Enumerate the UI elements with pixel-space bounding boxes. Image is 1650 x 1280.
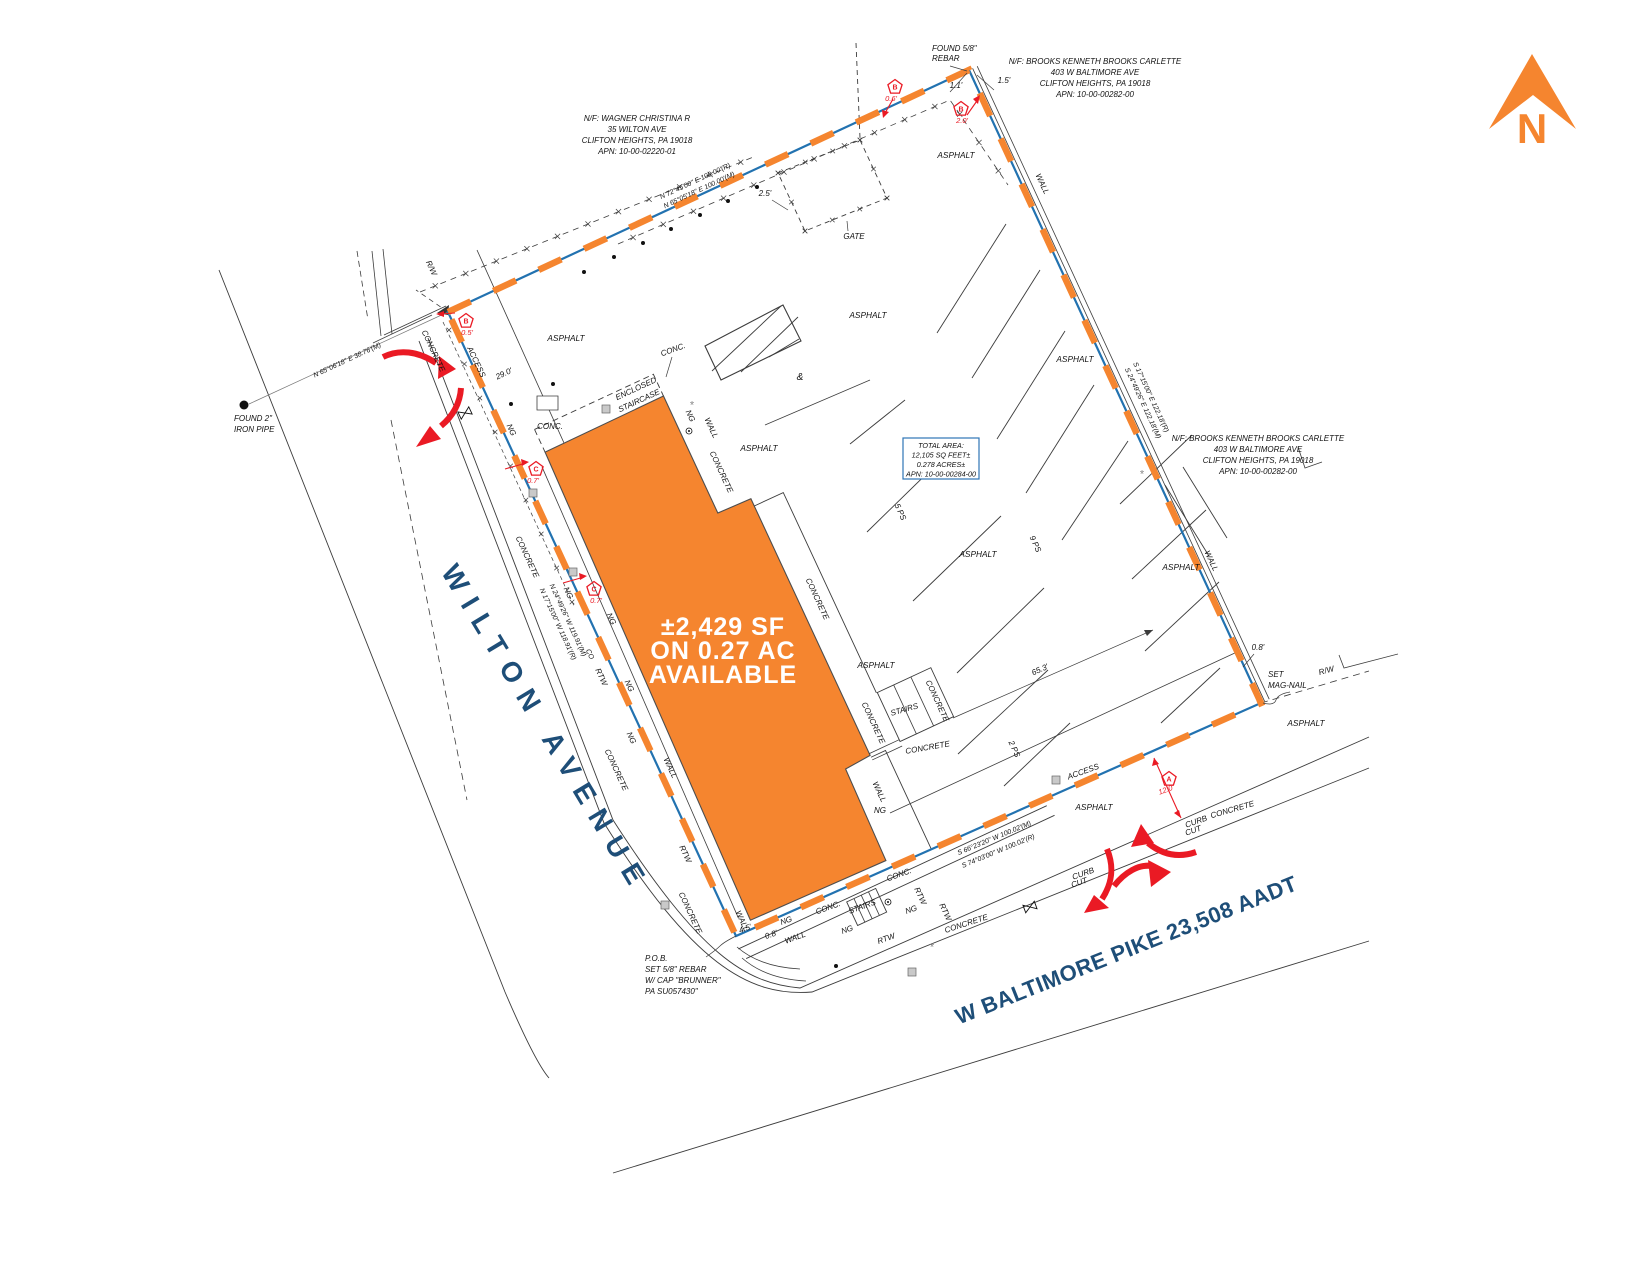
svg-text:N: N xyxy=(1517,105,1547,152)
svg-text:*: * xyxy=(1140,469,1145,481)
svg-text:403 W BALTIMORE AVE: 403 W BALTIMORE AVE xyxy=(1214,445,1303,454)
svg-text:W/ CAP "BRUNNER": W/ CAP "BRUNNER" xyxy=(645,976,722,985)
svg-text:NG: NG xyxy=(874,806,886,815)
svg-text:IRON PIPE: IRON PIPE xyxy=(234,425,275,434)
svg-text:403 W BALTIMORE AVE: 403 W BALTIMORE AVE xyxy=(1051,68,1140,77)
svg-text:N/F: BROOKS KENNETH BROOKS CAR: N/F: BROOKS KENNETH BROOKS CARLETTE xyxy=(1172,434,1345,443)
svg-text:CLIFTON HEIGHTS, PA 19018: CLIFTON HEIGHTS, PA 19018 xyxy=(1040,79,1151,88)
svg-text:SET 5/8" REBAR: SET 5/8" REBAR xyxy=(645,965,707,974)
svg-text:CLIFTON HEIGHTS, PA 19018: CLIFTON HEIGHTS, PA 19018 xyxy=(582,136,693,145)
svg-text:FOUND 2": FOUND 2" xyxy=(234,414,273,423)
svg-text:CLIFTON HEIGHTS, PA 19018: CLIFTON HEIGHTS, PA 19018 xyxy=(1203,456,1314,465)
svg-text:APN: 10-00-00282-00: APN: 10-00-00282-00 xyxy=(1055,90,1134,99)
svg-text:2.5': 2.5' xyxy=(758,189,772,198)
svg-text:REBAR: REBAR xyxy=(932,54,960,63)
svg-text:ASPHALT: ASPHALT xyxy=(739,443,778,453)
svg-text:GATE: GATE xyxy=(843,232,865,241)
svg-text:B: B xyxy=(463,319,468,326)
svg-text:ASPHALT: ASPHALT xyxy=(958,549,997,559)
svg-text:FOUND 5/8": FOUND 5/8" xyxy=(932,44,978,53)
svg-text:P.O.B.: P.O.B. xyxy=(645,954,668,963)
svg-text:B: B xyxy=(958,107,963,114)
svg-text:35 WILTON AVE: 35 WILTON AVE xyxy=(608,125,668,134)
svg-text:2.0': 2.0' xyxy=(955,116,968,125)
svg-text:ASPHALT: ASPHALT xyxy=(1074,802,1113,812)
svg-text:TOTAL AREA:: TOTAL AREA: xyxy=(918,441,964,450)
svg-text:N/F: WAGNER CHRISTINA R: N/F: WAGNER CHRISTINA R xyxy=(584,114,690,123)
svg-text:ASPHALT: ASPHALT xyxy=(848,310,887,320)
svg-text:0.278 ACRES±: 0.278 ACRES± xyxy=(917,460,965,469)
svg-text:C: C xyxy=(533,467,538,474)
svg-text:0.7': 0.7' xyxy=(527,476,539,485)
svg-text:*: * xyxy=(930,942,935,954)
svg-text:*: * xyxy=(690,400,695,412)
svg-text:PA SU057430": PA SU057430" xyxy=(645,987,699,996)
svg-text:N/F: BROOKS KENNETH BROOKS CAR: N/F: BROOKS KENNETH BROOKS CARLETTE xyxy=(1009,57,1182,66)
svg-text:0.8': 0.8' xyxy=(1252,643,1265,652)
svg-text:SET: SET xyxy=(1268,670,1285,679)
svg-text:0.7': 0.7' xyxy=(590,596,602,605)
svg-text:ASPHALT: ASPHALT xyxy=(546,333,585,343)
svg-text:ASPHALT: ASPHALT xyxy=(1161,562,1200,572)
svg-text:ASPHALT: ASPHALT xyxy=(936,150,975,160)
svg-text:ASPHALT: ASPHALT xyxy=(1286,718,1325,728)
svg-text:APN: 10-00-00282-00: APN: 10-00-00282-00 xyxy=(1218,467,1297,476)
svg-text:APN: 10-00-02220-01: APN: 10-00-02220-01 xyxy=(597,147,676,156)
svg-text:&: & xyxy=(797,372,804,383)
svg-text:ASPHALT: ASPHALT xyxy=(856,660,895,670)
svg-text:APN: 10-00-00284-00: APN: 10-00-00284-00 xyxy=(905,470,976,479)
svg-text:ASPHALT: ASPHALT xyxy=(1055,354,1094,364)
svg-text:B: B xyxy=(892,85,897,92)
svg-text:1.5': 1.5' xyxy=(998,76,1011,85)
svg-text:0.5': 0.5' xyxy=(461,328,473,337)
svg-text:CONC.: CONC. xyxy=(537,422,563,431)
svg-text:C: C xyxy=(591,587,596,594)
svg-text:0.6': 0.6' xyxy=(885,94,897,103)
svg-text:AVAILABLE: AVAILABLE xyxy=(649,661,797,689)
svg-text:12,105 SQ FEET±: 12,105 SQ FEET± xyxy=(912,451,971,460)
svg-text:MAG-NAIL: MAG-NAIL xyxy=(1268,681,1307,690)
